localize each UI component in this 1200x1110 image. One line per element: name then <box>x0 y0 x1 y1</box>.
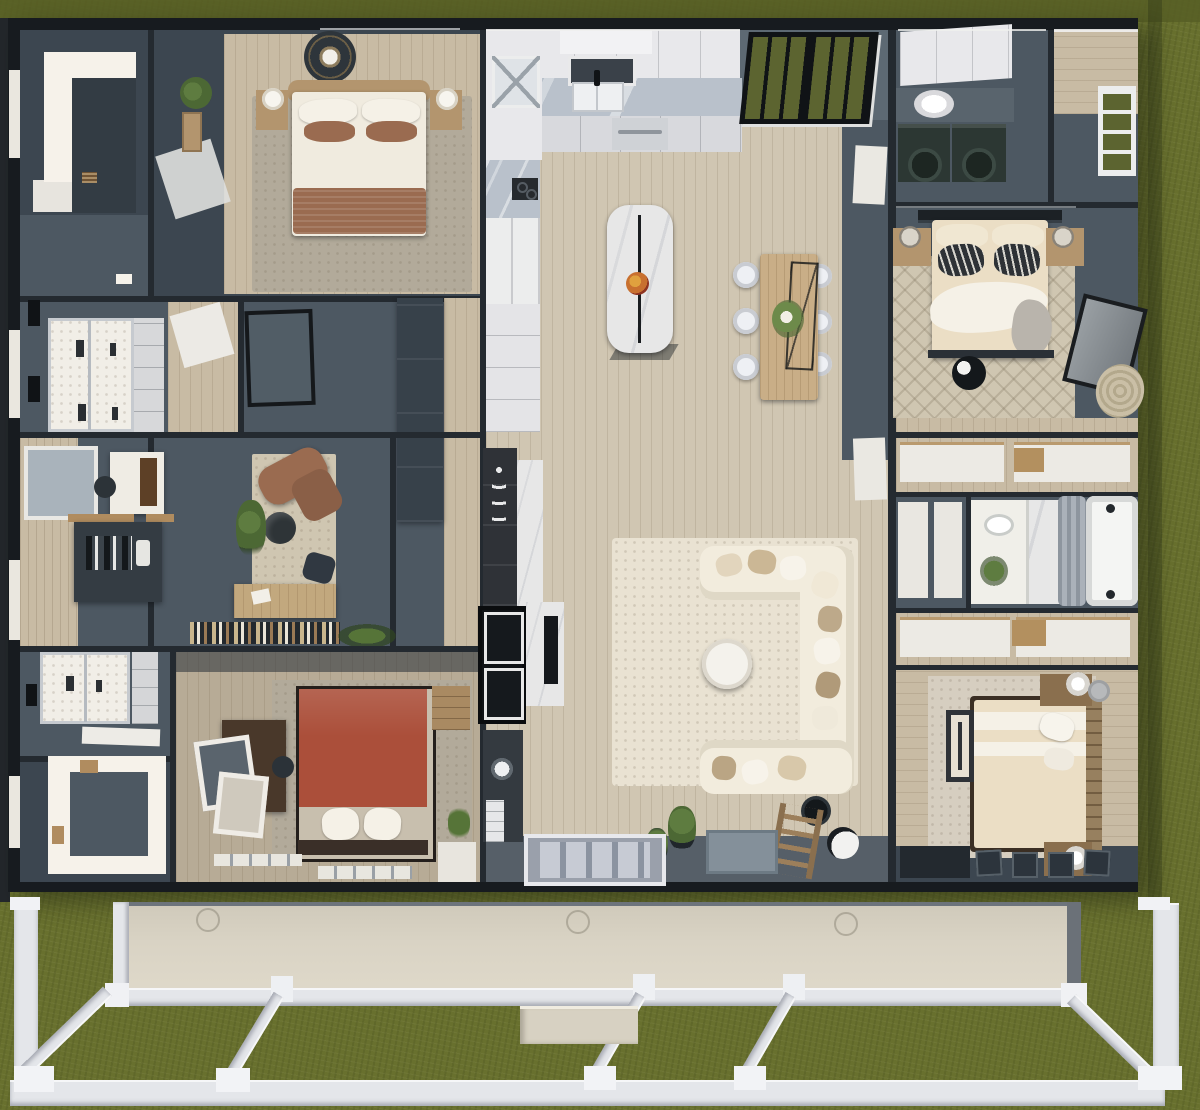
shower-curtain <box>1058 496 1086 606</box>
floorplan-render <box>0 0 1200 1110</box>
ceiling-fan-medallion-icon <box>304 31 356 83</box>
closet-bench <box>1012 620 1046 646</box>
fireplace-frame <box>484 668 524 720</box>
footing-pad <box>734 1066 766 1090</box>
grass-right-shade <box>1148 0 1162 905</box>
coffee-bar-counter <box>517 460 543 606</box>
bed3-bench <box>946 710 974 782</box>
fireplace-builtin <box>478 606 526 724</box>
closet-stool <box>52 826 64 844</box>
skirt-vent-ring <box>196 908 220 932</box>
coffee-table <box>702 639 752 689</box>
front-door-panels <box>540 842 650 878</box>
shower-fixture-icon <box>112 407 118 420</box>
bed2-patterned-sham <box>993 243 1041 277</box>
slat-wall-panel <box>1083 849 1110 876</box>
sofa-pillow <box>811 705 839 731</box>
leaning-art-board <box>244 309 315 407</box>
dining-chair <box>733 308 759 334</box>
slat-wall-panel <box>975 849 1002 876</box>
closet-lit-floor <box>33 180 73 212</box>
bed2-foot-rail <box>928 350 1054 358</box>
table-lamp-icon <box>1052 226 1074 248</box>
bed3-wood-headboard <box>1086 692 1102 854</box>
bed1-throw <box>293 188 426 234</box>
bottle-white <box>136 540 150 566</box>
closet-slat-vent <box>82 172 97 183</box>
appliance-knobs <box>492 462 506 522</box>
glass-door-hinge <box>28 376 40 402</box>
bed1-accent-pillow <box>366 121 417 142</box>
closet-lit-floor <box>44 52 136 78</box>
sewing-machine <box>140 458 157 506</box>
footing-pad <box>14 1066 54 1092</box>
closet-bench <box>1014 448 1044 472</box>
shower2-divider <box>84 654 87 722</box>
faucet-icon <box>594 70 600 86</box>
shower-fixture-icon <box>96 680 102 692</box>
dryer-door-icon <box>962 148 996 182</box>
kitchen-upper-bright <box>560 30 652 54</box>
burner-icon <box>526 189 537 200</box>
bedroom2-floor-strip <box>896 418 1138 432</box>
fridge <box>486 218 540 304</box>
glass-cabinet-x-mullion <box>492 56 540 108</box>
slat-wall-panel <box>1012 852 1038 878</box>
fruit-bowl <box>626 272 649 295</box>
porch-cap <box>1138 897 1170 910</box>
skirt-wall <box>116 902 1067 1002</box>
hall-wood-strip <box>444 298 480 652</box>
bath-hall-door <box>934 502 962 598</box>
bed1-accent-pillow <box>304 121 355 142</box>
window-seat-slats <box>214 854 302 866</box>
oven <box>612 118 668 150</box>
small-white-item <box>116 274 132 284</box>
exterior-door-panes <box>1103 92 1131 170</box>
sliding-closet-door <box>900 442 1004 482</box>
french-door-panes <box>745 37 810 119</box>
exterior-glass-door <box>1098 86 1136 176</box>
left-wall-window <box>9 560 20 640</box>
round-fan-icon <box>489 756 515 782</box>
linen-cabinet2 <box>132 652 158 724</box>
wall-tv <box>544 616 558 684</box>
hall-door-white <box>853 145 888 205</box>
footing-pad <box>584 1066 616 1090</box>
office-desk <box>234 584 336 618</box>
oven-handle <box>618 130 662 134</box>
skirt-vent-ring <box>834 912 858 936</box>
bed4-pillow <box>363 807 402 842</box>
footing-pad <box>1138 1066 1182 1090</box>
flower-centerpiece <box>772 300 804 338</box>
wall-highlight <box>898 29 1046 31</box>
office-plant <box>236 500 266 556</box>
round-side-table <box>264 512 296 544</box>
table-lamp-icon <box>899 226 921 248</box>
table-lamp-icon <box>262 88 284 110</box>
vanity-sink <box>984 514 1014 536</box>
left-wall-window <box>9 70 20 158</box>
wall-highlight <box>896 206 1076 208</box>
drum-lamp-icon <box>1088 680 1110 702</box>
doormat <box>706 830 778 874</box>
bed2-iron-headboard <box>918 210 1062 220</box>
skirt-vent-ring <box>566 910 590 934</box>
dining-chair <box>733 262 759 288</box>
task-chair <box>94 476 116 498</box>
sofa-pillow <box>711 755 737 781</box>
front-door <box>524 834 666 886</box>
shower-fixture-icon <box>110 343 116 356</box>
laundry-basket <box>914 90 954 118</box>
pantry-cabinets <box>486 304 540 432</box>
round-pouf <box>952 356 986 390</box>
table-lamp-icon <box>436 88 458 110</box>
washer-door-icon <box>908 148 942 182</box>
left-wall-window <box>9 330 20 418</box>
footing-pad <box>216 1068 250 1092</box>
double-shower <box>48 318 134 432</box>
kitchen-sink <box>572 82 624 112</box>
dark-console <box>900 846 970 878</box>
console-shelf-wood <box>146 514 174 522</box>
shower-divider <box>88 320 91 430</box>
bed4-terracotta-cover <box>299 689 427 807</box>
porch-mid-beam <box>107 988 1075 1006</box>
bath2-door <box>82 727 161 747</box>
arc-lamp-globe-icon <box>827 827 859 859</box>
skirt-edge-left-beam <box>113 902 129 994</box>
fireplace-frame <box>484 612 524 664</box>
potted-plant <box>668 806 696 850</box>
closet-bl-inner <box>70 772 148 856</box>
bed2-patterned-sham <box>937 243 985 277</box>
leaning-art-frame <box>213 772 269 839</box>
hall-plant <box>448 806 470 840</box>
bedroom4-chair <box>272 756 294 778</box>
bottle-row <box>86 536 132 570</box>
wall-office-hall <box>390 438 396 652</box>
white-drawers <box>486 800 504 842</box>
shower-fixture-icon <box>76 340 84 357</box>
wall-highlight <box>320 28 460 30</box>
linen-cabinet <box>134 318 164 434</box>
entry-step <box>520 1006 638 1044</box>
sink-divider <box>596 82 598 112</box>
bookshelf-row <box>190 622 340 644</box>
window-seat-slats <box>318 866 412 879</box>
drum-lamp-icon <box>1066 672 1090 696</box>
hall-door-white <box>853 437 887 500</box>
closet-interior-dark <box>72 78 136 213</box>
dining-chair <box>733 354 759 380</box>
french-doors <box>739 32 879 124</box>
wall-highlight <box>1054 29 1138 32</box>
shelf-plant <box>338 624 396 648</box>
slat-wall-panel <box>1048 852 1074 878</box>
porch-right-post <box>1153 903 1179 1083</box>
wall-highlight <box>486 29 740 31</box>
vanity-flowers <box>980 556 1008 586</box>
shower-fixture-icon <box>66 676 74 691</box>
left-wall-window <box>9 776 20 848</box>
bedroom1-plant <box>180 77 212 109</box>
glass-door-hinge <box>28 300 40 326</box>
french-door-panes <box>808 37 873 119</box>
shower-fixture-icon <box>78 404 86 421</box>
glass-door-hinge <box>26 684 37 706</box>
console-shelf-wood <box>68 514 134 522</box>
fridge-door-split <box>511 218 513 304</box>
bedroom4-top-shadow <box>176 652 480 672</box>
wall-center-right <box>888 30 896 882</box>
tub-fixture-icon <box>1106 504 1115 513</box>
laundry-upper-cabinets <box>900 24 1012 86</box>
mudroom-window <box>24 446 98 520</box>
bath-hall-door <box>898 502 928 598</box>
bed4-headboard <box>298 840 428 855</box>
sliding-closet-door <box>900 617 1010 657</box>
wardrobe-cabinets <box>397 298 443 522</box>
bedroom4-dresser <box>432 686 470 730</box>
bedroom1-wall-shelf <box>182 112 202 152</box>
tub-fixture-icon <box>1106 590 1115 599</box>
bedroom4-door-white <box>438 842 476 882</box>
porch-cap <box>10 897 40 910</box>
closet-stool <box>80 760 98 773</box>
bed4-pillow <box>321 807 360 842</box>
